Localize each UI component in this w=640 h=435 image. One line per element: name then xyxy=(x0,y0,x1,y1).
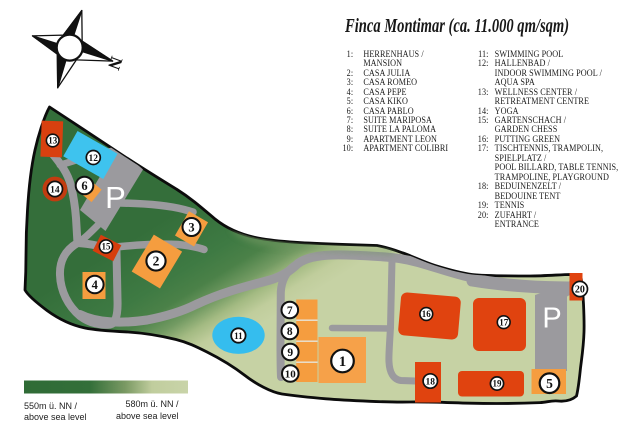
svg-text:15: 15 xyxy=(102,242,112,252)
svg-text:18: 18 xyxy=(426,377,436,387)
svg-text:2: 2 xyxy=(153,254,160,269)
svg-text:6: 6 xyxy=(81,179,87,193)
svg-text:7: 7 xyxy=(287,305,293,317)
svg-text:N: N xyxy=(104,54,127,73)
svg-text:5: 5 xyxy=(546,376,553,391)
svg-text:11: 11 xyxy=(234,331,243,341)
svg-text:4: 4 xyxy=(92,278,99,292)
svg-text:P: P xyxy=(105,180,126,215)
svg-text:P: P xyxy=(542,303,561,335)
svg-text:3: 3 xyxy=(188,220,194,234)
svg-text:1: 1 xyxy=(339,354,347,370)
svg-text:12: 12 xyxy=(89,154,99,164)
svg-text:14: 14 xyxy=(50,185,60,195)
svg-text:10: 10 xyxy=(285,368,297,380)
svg-text:19: 19 xyxy=(493,379,503,389)
svg-text:9: 9 xyxy=(287,347,293,359)
svg-text:8: 8 xyxy=(287,326,293,338)
svg-text:13: 13 xyxy=(48,136,58,146)
svg-text:20: 20 xyxy=(575,285,585,296)
svg-text:16: 16 xyxy=(422,309,432,319)
svg-text:17: 17 xyxy=(499,317,509,327)
